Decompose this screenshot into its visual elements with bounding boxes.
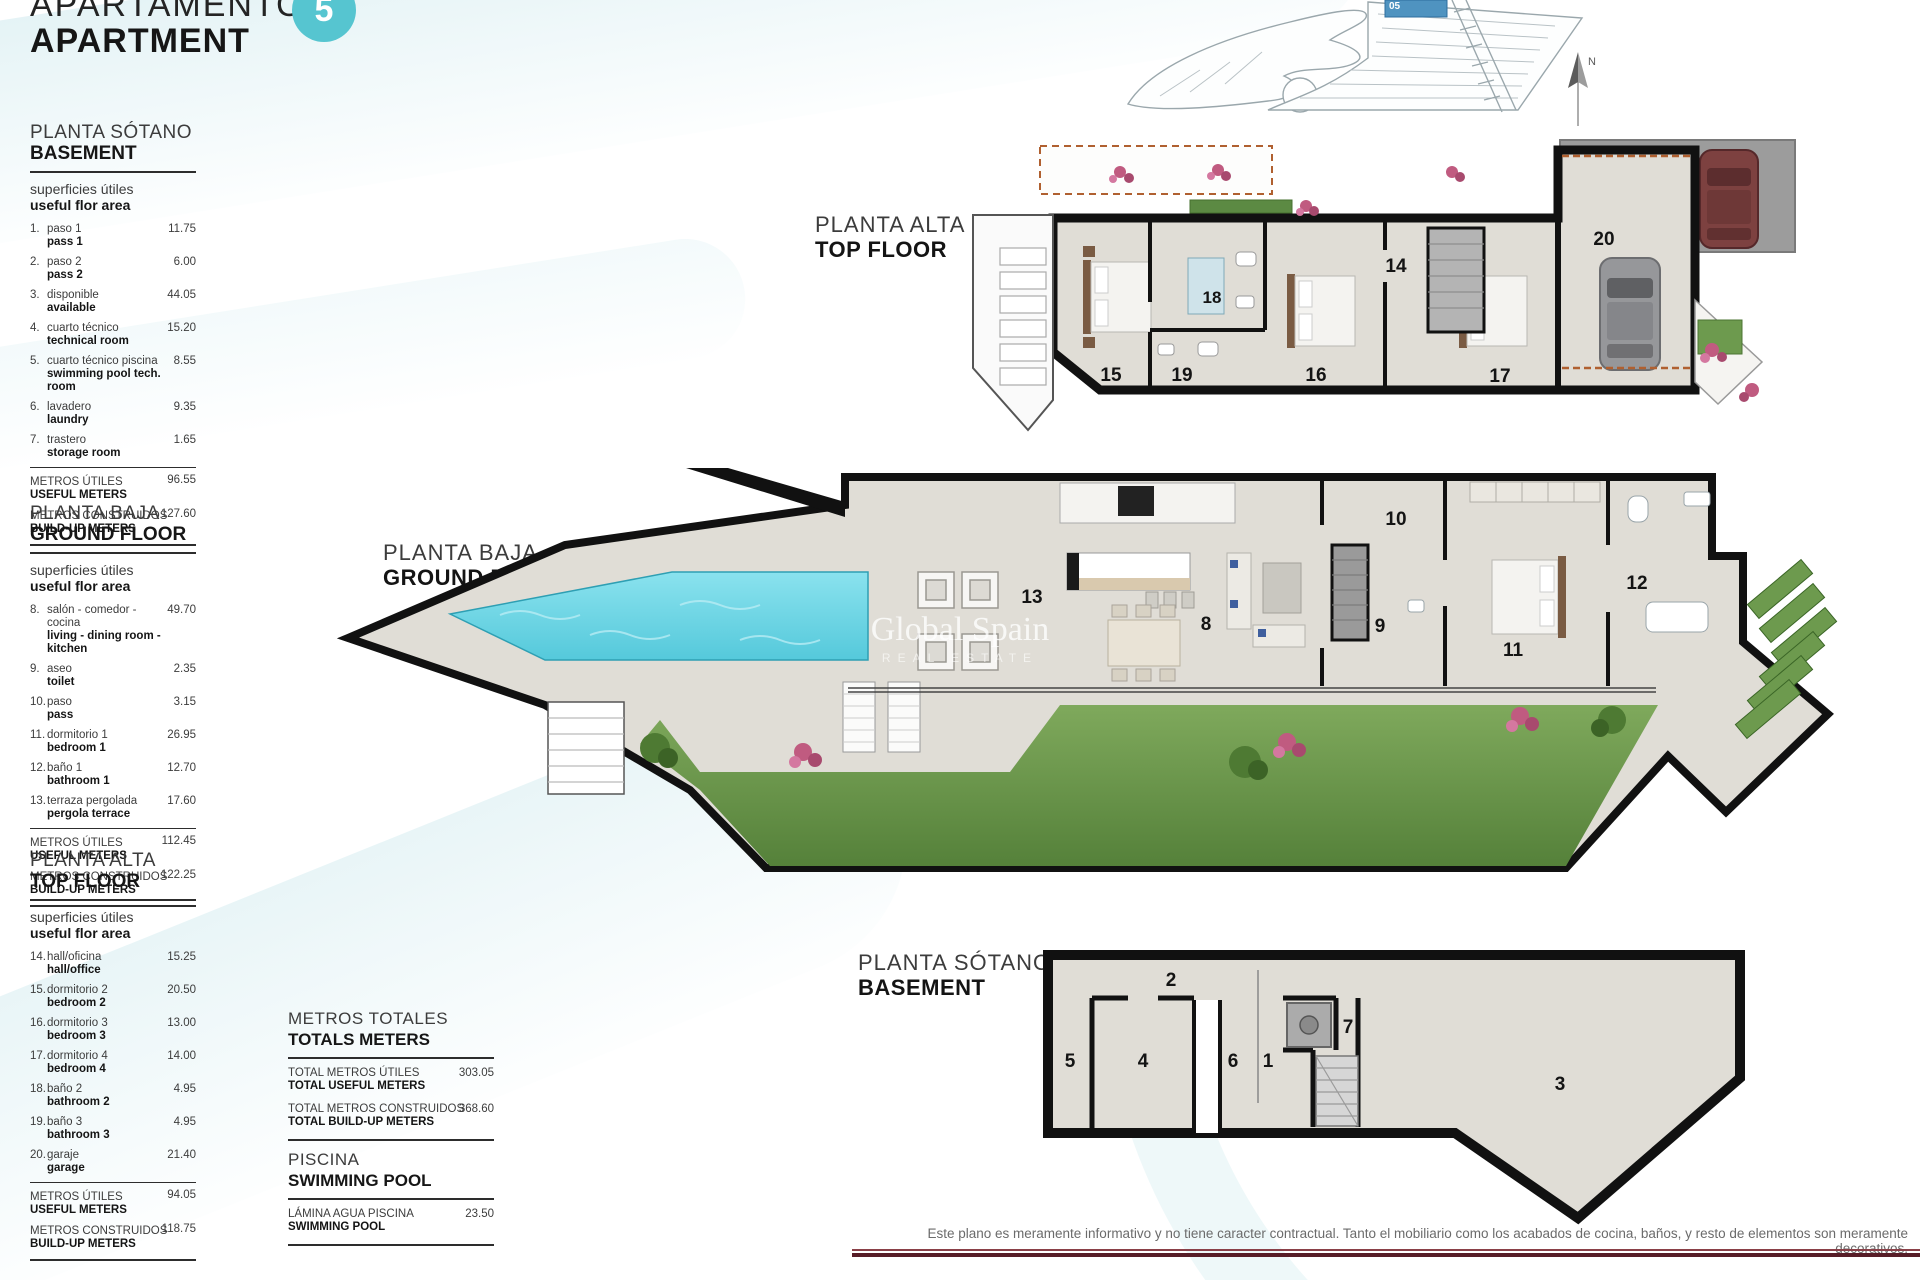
section-title-es: PLANTA SÓTANO (30, 122, 196, 143)
bed-icon (1287, 274, 1355, 348)
area-row-label-en: bathroom 1 (47, 775, 162, 788)
area-row: 16. dormitorio 3 bedroom 3 13.00 (30, 1017, 196, 1043)
room-number: 2 (1166, 970, 1177, 992)
area-row-number: 17. (30, 1050, 47, 1076)
area-row-number: 7. (30, 434, 47, 460)
staircase (973, 215, 1053, 430)
built-meters-en: BUILD-UP METERS (30, 1238, 196, 1251)
section-subtitle-es: superficies útiles (30, 909, 196, 925)
area-row: 19. baño 3 bathroom 3 4.95 (30, 1116, 196, 1142)
area-row-number: 2. (30, 256, 47, 282)
divider (30, 1259, 196, 1261)
area-row-label-en: hall/office (47, 964, 162, 977)
area-row-value: 11.75 (168, 223, 196, 236)
area-rows: 1. paso 1 pass 1 11.75 2. paso 2 pass 2 … (30, 223, 196, 460)
room-number: 5 (1065, 1051, 1076, 1073)
roof-terrace-dashed (1040, 146, 1272, 194)
room-number: 15 (1100, 365, 1121, 387)
area-row-number: 1. (30, 223, 47, 249)
footer-rule-top (852, 1249, 1920, 1251)
room-number: 11 (1503, 640, 1523, 662)
area-row-label-es: garaje (47, 1149, 162, 1162)
useful-meters-value: 96.55 (167, 474, 196, 487)
area-row-value: 44.05 (167, 289, 196, 302)
pool-area-es: LÁMINA AGUA PISCINA (288, 1208, 494, 1221)
divider (30, 467, 196, 468)
garden-staircase (548, 702, 624, 794)
section-subtitle-es: superficies útiles (30, 562, 196, 578)
section-title-en: GROUND FLOOR (30, 524, 196, 545)
area-row-value: 2.35 (174, 663, 196, 676)
area-row-number: 15. (30, 984, 47, 1010)
area-row: 11. dormitorio 1 bedroom 1 26.95 (30, 729, 196, 755)
section-subtitle-en: useful flor area (30, 578, 196, 594)
compass-n-label: N (1588, 56, 1596, 68)
area-row-value: 9.35 (174, 401, 196, 414)
area-row-label-es: dormitorio 1 (47, 729, 162, 742)
car-red-icon (1700, 150, 1758, 248)
area-row-label-en: swimming pool tech. room (47, 368, 162, 394)
room-number: 12 (1626, 573, 1647, 595)
top-floor-plan (930, 130, 1810, 480)
disclaimer-text: Este plano es meramente informativo y no… (888, 1226, 1908, 1256)
total-built-row: TOTAL METROS CONSTRUIDOS TOTAL BUILD-UP … (288, 1103, 494, 1129)
room-number: 6 (1228, 1051, 1239, 1073)
useful-meters-en: USEFUL METERS (30, 489, 196, 502)
section-title-en: TOP FLOOR (30, 871, 196, 892)
basement-plan (1030, 945, 1760, 1235)
unit-number-badge: 5 (292, 0, 356, 42)
divider (30, 828, 196, 829)
section-title-en: BASEMENT (30, 143, 196, 164)
section-subtitle-es: superficies útiles (30, 181, 196, 197)
divider (288, 1139, 494, 1141)
ground-floor-plan (340, 460, 1850, 880)
area-row-label-es: salón - comedor - cocina (47, 604, 162, 630)
total-built-en: TOTAL BUILD-UP METERS (288, 1116, 494, 1129)
roof-fin (686, 468, 845, 517)
room-number: 8 (1201, 614, 1212, 636)
area-row-value: 12.70 (167, 762, 196, 775)
room-number: 7 (1343, 1017, 1354, 1039)
plan-label-es: PLANTA SÓTANO (858, 950, 1051, 975)
area-row-label-es: cuarto técnico (47, 322, 162, 335)
useful-meters-row: METROS ÚTILES USEFUL METERS 94.05 (30, 1191, 196, 1217)
area-row-number: 8. (30, 604, 47, 656)
divider (30, 171, 196, 173)
area-row-label-en: garage (47, 1162, 162, 1175)
area-row-value: 15.25 (167, 951, 196, 964)
basement-plan-label: PLANTA SÓTANO BASEMENT (858, 950, 1051, 1000)
totals-title-en: TOTALS METERS (288, 1029, 494, 1050)
divider (288, 1244, 494, 1246)
section-subtitle-en: useful flor area (30, 197, 196, 213)
area-row-label-en: bedroom 4 (47, 1063, 162, 1076)
basement-slab (1048, 955, 1740, 1218)
area-row: 12. baño 1 bathroom 1 12.70 (30, 762, 196, 788)
area-row: 8. salón - comedor - cocina living - din… (30, 604, 196, 656)
plan-label-en: BASEMENT (858, 975, 1051, 1000)
area-row-label-en: bedroom 2 (47, 997, 162, 1010)
room-number: 18 (1203, 288, 1222, 308)
area-row-label-en: laundry (47, 414, 162, 427)
area-row-label-es: baño 3 (47, 1116, 162, 1129)
area-row-label-en: living - dining room - kitchen (47, 630, 162, 656)
area-row-label-en: toilet (47, 676, 162, 689)
area-row-label-es: paso 2 (47, 256, 162, 269)
pool-area-en: SWIMMING POOL (288, 1221, 494, 1234)
total-built-value: 368.60 (459, 1103, 494, 1116)
useful-meters-value: 112.45 (162, 835, 196, 848)
area-row-value: 6.00 (174, 256, 196, 269)
area-row-value: 49.70 (167, 604, 196, 617)
divider (30, 552, 196, 554)
area-row: 14. hall/oficina hall/office 15.25 (30, 951, 196, 977)
room-number: 19 (1171, 365, 1192, 387)
useful-meters-en: USEFUL METERS (30, 1204, 196, 1217)
area-row-value: 20.50 (167, 984, 196, 997)
area-row: 6. lavadero laundry 9.35 (30, 401, 196, 427)
area-row-label-es: paso (47, 696, 162, 709)
built-meters-value: 118.75 (162, 1223, 196, 1236)
room-number: 17 (1489, 366, 1510, 388)
area-row-label-es: disponible (47, 289, 162, 302)
area-row: 2. paso 2 pass 2 6.00 (30, 256, 196, 282)
area-row-label-es: dormitorio 2 (47, 984, 162, 997)
divider (288, 1198, 494, 1200)
area-row: 4. cuarto técnico technical room 15.20 (30, 322, 196, 348)
area-row: 18. baño 2 bathroom 2 4.95 (30, 1083, 196, 1109)
area-row: 7. trastero storage room 1.65 (30, 434, 196, 460)
top-floor-area-table: PLANTA ALTA TOP FLOOR superficies útiles… (30, 850, 196, 1269)
area-row-number: 10. (30, 696, 47, 722)
area-row-label-es: paso 1 (47, 223, 162, 236)
area-row-label-es: hall/oficina (47, 951, 162, 964)
totals-block: METROS TOTALES TOTALS METERS TOTAL METRO… (288, 1008, 494, 1254)
area-row-label-en: bedroom 3 (47, 1030, 162, 1043)
site-unit-label: 05 (1389, 1, 1400, 12)
area-row-number: 16. (30, 1017, 47, 1043)
section-title-es: PLANTA ALTA (30, 850, 196, 871)
area-row-label-en: pass (47, 709, 162, 722)
area-row-label-es: baño 2 (47, 1083, 162, 1096)
stairwell (1332, 545, 1368, 640)
area-row: 17. dormitorio 4 bedroom 4 14.00 (30, 1050, 196, 1076)
area-row-label-es: dormitorio 3 (47, 1017, 162, 1030)
room-number: 1 (1263, 1051, 1274, 1073)
room-number: 16 (1305, 365, 1326, 387)
area-row-value: 3.15 (174, 696, 196, 709)
area-row-label-en: bedroom 1 (47, 742, 162, 755)
area-row-label-en: pass 2 (47, 269, 162, 282)
useful-meters-value: 94.05 (167, 1189, 196, 1202)
area-row-number: 6. (30, 401, 47, 427)
area-row-value: 17.60 (167, 795, 196, 808)
area-rows: 14. hall/oficina hall/office 15.25 15. d… (30, 951, 196, 1175)
area-row-number: 12. (30, 762, 47, 788)
area-row-label-es: dormitorio 4 (47, 1050, 162, 1063)
totals-title-es: METROS TOTALES (288, 1008, 494, 1029)
hedge-strip (1190, 200, 1292, 213)
staircase (1316, 1056, 1358, 1126)
area-row-label-en: bathroom 2 (47, 1096, 162, 1109)
room-number: 4 (1138, 1051, 1149, 1073)
site-plan (1115, 0, 1605, 130)
pool-area-value: 23.50 (465, 1208, 494, 1221)
area-row-label-es: lavadero (47, 401, 162, 414)
floorplan-brochure-page: APARTAMENTO APARTMENT 5 05 N PLAN (0, 0, 1920, 1280)
area-row-label-es: aseo (47, 663, 162, 676)
washing-machine-icon (1287, 1003, 1331, 1047)
area-row-label-en: pergola terrace (47, 808, 162, 821)
room-number: 20 (1593, 229, 1614, 251)
section-title-es: PLANTA BAJA (30, 503, 196, 524)
side-grass (1698, 320, 1742, 354)
area-row-value: 8.55 (174, 355, 196, 368)
total-useful-row: TOTAL METROS ÚTILES TOTAL USEFUL METERS … (288, 1067, 494, 1093)
lightwell (1194, 1000, 1220, 1133)
area-row-label-es: cuarto técnico piscina (47, 355, 162, 368)
divider (30, 899, 196, 901)
basement-area-table: PLANTA SÓTANO BASEMENT superficies útile… (30, 122, 196, 554)
pool-title-es: PISCINA (288, 1149, 494, 1170)
area-row-number: 5. (30, 355, 47, 394)
area-row-value: 1.65 (174, 434, 196, 447)
area-row-label-es: baño 1 (47, 762, 162, 775)
area-row: 13. terraza pergolada pergola terrace 17… (30, 795, 196, 821)
unit-number: 5 (315, 0, 334, 30)
area-row-number: 20. (30, 1149, 47, 1175)
room-number: 9 (1375, 616, 1386, 638)
area-row-label-es: terraza pergolada (47, 795, 162, 808)
area-row-value: 26.95 (167, 729, 196, 742)
area-row: 1. paso 1 pass 1 11.75 (30, 223, 196, 249)
area-row-number: 19. (30, 1116, 47, 1142)
compass-icon (1548, 48, 1608, 133)
footer-rule-bottom (852, 1253, 1920, 1257)
room-number: 3 (1555, 1074, 1566, 1096)
pool-area-row: LÁMINA AGUA PISCINA SWIMMING POOL 23.50 (288, 1208, 494, 1234)
total-useful-en: TOTAL USEFUL METERS (288, 1080, 494, 1093)
area-row: 3. disponible available 44.05 (30, 289, 196, 315)
area-row-label-en: technical room (47, 335, 162, 348)
pool-title-en: SWIMMING POOL (288, 1170, 494, 1191)
area-row-value: 4.95 (174, 1083, 196, 1096)
area-row-number: 3. (30, 289, 47, 315)
area-row-value: 4.95 (174, 1116, 196, 1129)
area-row-number: 18. (30, 1083, 47, 1109)
area-row-number: 9. (30, 663, 47, 689)
area-row-value: 15.20 (167, 322, 196, 335)
total-useful-value: 303.05 (459, 1067, 494, 1080)
dining-table-icon (1108, 605, 1180, 681)
area-row-number: 14. (30, 951, 47, 977)
room-number: 13 (1021, 587, 1042, 609)
area-row-value: 13.00 (167, 1017, 196, 1030)
page-title-en: APARTMENT (30, 22, 250, 61)
area-row-label-en: available (47, 302, 162, 315)
divider (288, 1057, 494, 1059)
area-row-label-en: storage room (47, 447, 162, 460)
area-row-number: 11. (30, 729, 47, 755)
area-row: 5. cuarto técnico piscina swimming pool … (30, 355, 196, 394)
area-row-label-en: pass 1 (47, 236, 162, 249)
room-number: 10 (1385, 509, 1406, 531)
area-row-value: 21.40 (167, 1149, 196, 1162)
built-meters-row: METROS CONSTRUIDOS BUILD-UP METERS 118.7… (30, 1225, 196, 1251)
stairwell (1428, 228, 1484, 332)
room-number: 14 (1385, 256, 1406, 278)
area-row-label-en: bathroom 3 (47, 1129, 162, 1142)
area-row-value: 14.00 (167, 1050, 196, 1063)
area-row-label-es: trastero (47, 434, 162, 447)
area-row: 10. paso pass 3.15 (30, 696, 196, 722)
area-row-number: 13. (30, 795, 47, 821)
car-gray-icon (1600, 258, 1660, 370)
section-subtitle-en: useful flor area (30, 925, 196, 941)
area-row: 9. aseo toilet 2.35 (30, 663, 196, 689)
useful-meters-row: METROS ÚTILES USEFUL METERS 96.55 (30, 476, 196, 502)
area-row-number: 4. (30, 322, 47, 348)
area-row: 20. garaje garage 21.40 (30, 1149, 196, 1175)
area-rows: 8. salón - comedor - cocina living - din… (30, 604, 196, 821)
area-row: 15. dormitorio 2 bedroom 2 20.50 (30, 984, 196, 1010)
divider (30, 1182, 196, 1183)
